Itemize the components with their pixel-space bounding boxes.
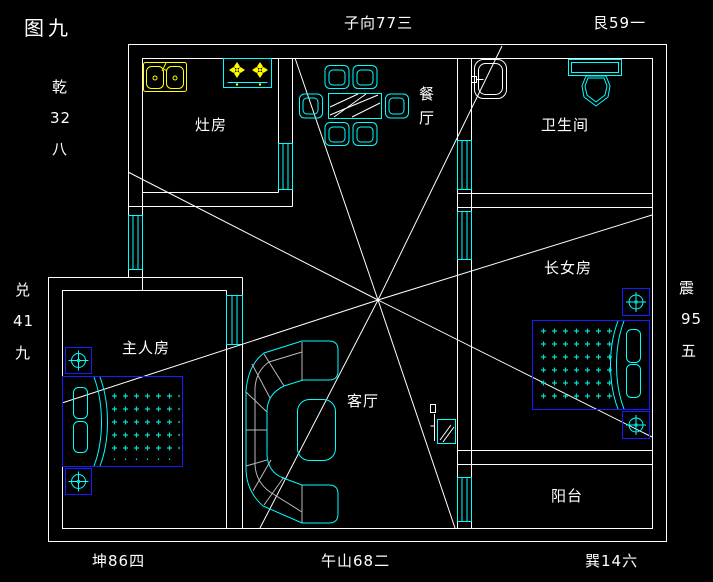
compass-left-lower-num: 41 [13,314,34,329]
room-label-master: 主人房 [122,341,170,356]
compass-left-upper-star: 八 [52,142,68,157]
compass-left-lower-char: 兑 [15,283,31,298]
compass-left-upper-num: 32 [50,111,71,126]
sofa-icon [246,341,338,523]
kitchen-sink-icon [144,63,187,92]
compass-top-center: 子向77三 [344,16,413,31]
lamp-icon [626,292,646,312]
window-kitchen-wall [279,144,293,190]
lamp-icon [69,472,89,492]
room-label-bathroom: 卫生间 [541,118,589,133]
lamp-icon [69,351,89,371]
bathroom-sink-icon [472,60,507,99]
dining-table-icon [329,94,382,119]
window-master-wall [227,296,243,345]
room-label-living: 客厅 [347,394,379,409]
stove-icon [224,59,272,88]
toilet-icon [569,60,622,107]
compass-bottom-center: 午山68二 [321,554,390,569]
compass-bottom-left: 坤86四 [92,554,145,569]
window-daughter-wall [458,212,472,260]
room-label-kitchen: 灶房 [195,118,227,133]
tv-icon [431,405,456,444]
compass-right-num: 95 [681,312,702,327]
figure-title: 图九 [24,18,72,38]
window-left-wall [129,216,143,270]
room-label-eldest-daughter: 长女房 [544,261,592,276]
window-balcony-wall [458,478,472,522]
floorplan-canvas: 图九 子向77三 艮59一 乾 32 八 兑 41 九 震 95 五 坤86四 … [0,0,713,582]
window-bathroom-wall [458,141,472,190]
master-bed-icon [63,377,183,467]
coffee-table-icon [298,400,336,461]
floorplan-drawing [0,0,713,582]
compass-right-char: 震 [679,281,695,296]
compass-left-upper-char: 乾 [52,80,68,95]
room-label-dining: 餐厅 [418,86,433,134]
daughter-bed-icon [533,321,650,410]
compass-top-right: 艮59一 [593,16,646,31]
compass-bottom-right: 巽14六 [585,554,638,569]
compass-left-lower-star: 九 [15,346,31,361]
compass-right-star: 五 [681,344,697,359]
room-label-balcony: 阳台 [551,489,583,504]
window-symbols [129,141,472,522]
